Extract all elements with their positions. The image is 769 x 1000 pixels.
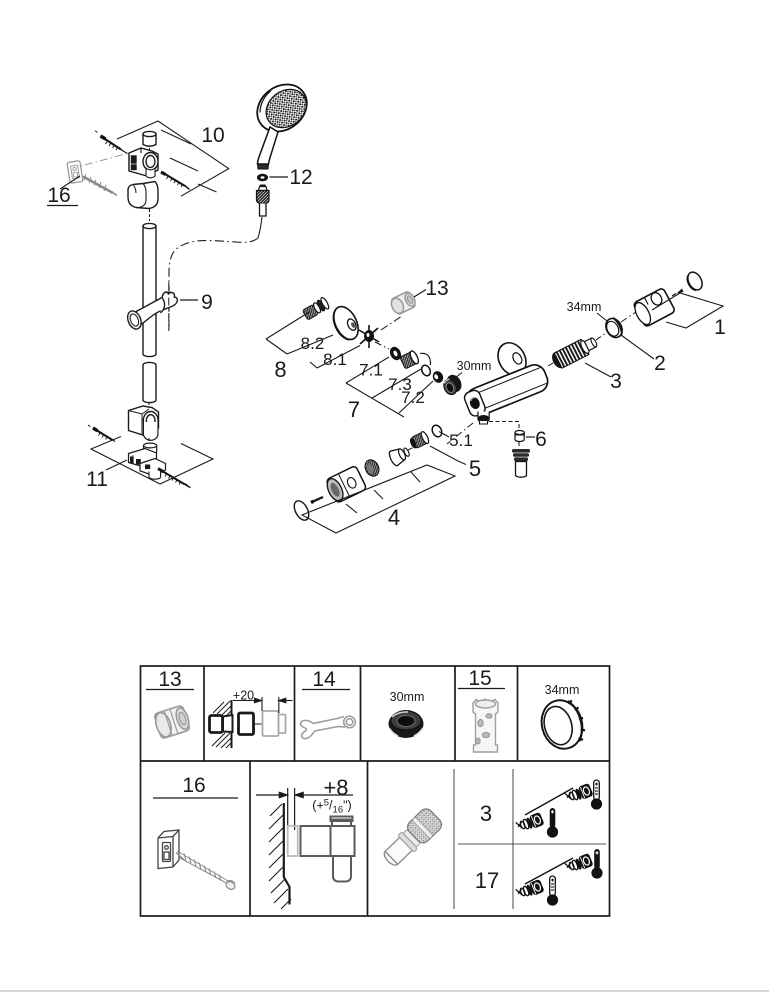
svg-text:13: 13 — [158, 668, 181, 691]
svg-text:7.2: 7.2 — [401, 388, 425, 407]
svg-text:11: 11 — [86, 468, 108, 491]
svg-text:15: 15 — [468, 667, 491, 690]
svg-text:13: 13 — [425, 277, 448, 300]
svg-text:10: 10 — [201, 124, 224, 147]
svg-text:12: 12 — [289, 166, 312, 189]
svg-text:17: 17 — [475, 868, 499, 893]
svg-text:4: 4 — [388, 505, 400, 530]
svg-text:16: 16 — [47, 184, 70, 207]
svg-text:1: 1 — [714, 316, 726, 339]
svg-text:30mm: 30mm — [390, 690, 425, 704]
svg-text:6: 6 — [535, 428, 547, 451]
svg-text:+8: +8 — [323, 775, 348, 800]
svg-text:7: 7 — [348, 397, 360, 422]
svg-text:9: 9 — [201, 291, 213, 314]
svg-text:8.1: 8.1 — [323, 350, 347, 369]
svg-text:5.1: 5.1 — [449, 431, 473, 450]
svg-text:8: 8 — [274, 357, 286, 382]
svg-text:34mm: 34mm — [545, 683, 580, 697]
svg-text:8.2: 8.2 — [301, 334, 325, 353]
svg-text:5: 5 — [469, 456, 481, 481]
svg-text:14: 14 — [312, 668, 336, 691]
svg-text:3: 3 — [480, 801, 492, 826]
svg-text:16: 16 — [182, 774, 205, 797]
svg-text:30mm: 30mm — [457, 359, 492, 373]
svg-text:2: 2 — [654, 352, 666, 375]
svg-text:3: 3 — [610, 370, 622, 393]
svg-text:7.1: 7.1 — [359, 361, 383, 380]
svg-text:34mm: 34mm — [567, 300, 602, 314]
